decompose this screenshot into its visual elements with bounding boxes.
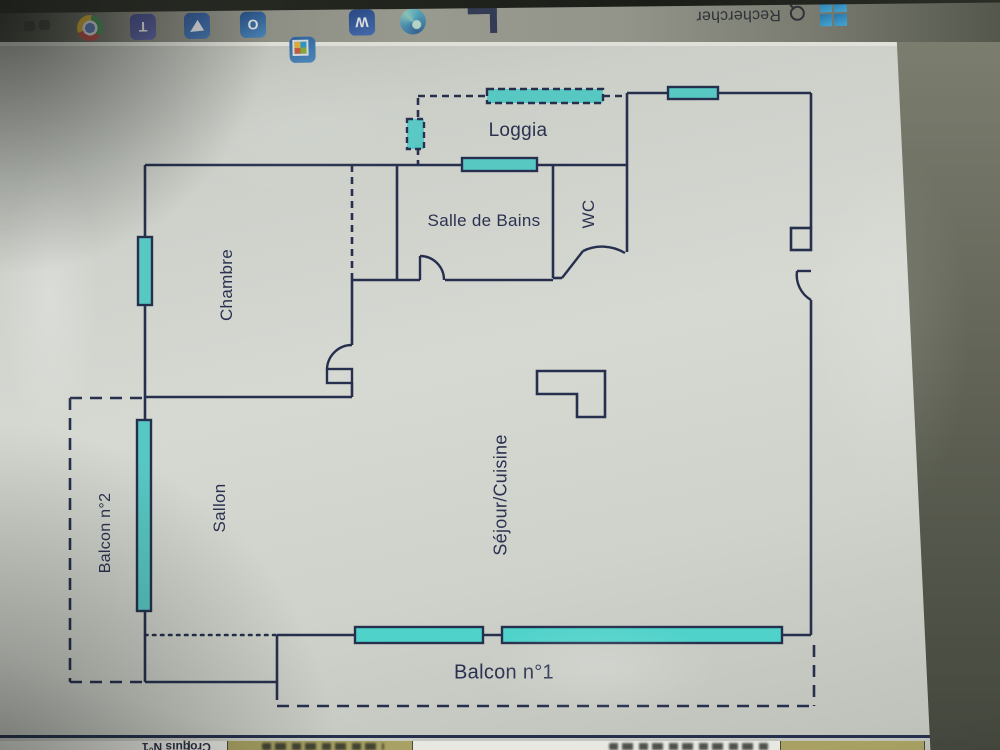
tray-icon[interactable]: [24, 21, 35, 31]
search-box[interactable]: Rechercher: [655, 3, 805, 28]
wc-door-arc: [583, 247, 625, 253]
wc-door-leaf: [562, 251, 583, 278]
kitchen-counter: [537, 371, 605, 417]
entry-door-arc: [797, 271, 811, 300]
floor-plan-drawing: [0, 0, 1000, 750]
word-icon[interactable]: W: [349, 9, 376, 36]
loggia-window-side: [407, 119, 424, 149]
entry-window: [668, 87, 718, 99]
chambre-window: [138, 237, 152, 305]
teams-icon[interactable]: T: [130, 14, 157, 41]
store-icon[interactable]: [289, 36, 316, 63]
label-sallon: Sallon: [210, 483, 230, 532]
walls: [145, 93, 811, 700]
wall-notch: [791, 228, 811, 250]
chambre-door-jamb: [327, 369, 352, 383]
search-label: Rechercher: [696, 5, 781, 25]
app-bracket-icon[interactable]: [468, 7, 498, 34]
sejour-window-1: [355, 627, 483, 643]
designer-icon[interactable]: [184, 13, 211, 40]
label-sejour-cuisine: Séjour/Cuisine: [491, 434, 512, 555]
outlook-icon[interactable]: O: [240, 11, 267, 38]
tray-icon[interactable]: [39, 20, 50, 30]
bains-door-arc: [420, 256, 444, 280]
sejour-window-2: [502, 627, 782, 643]
edge-icon[interactable]: [400, 8, 427, 35]
label-balcon-2: Balcon n°2: [97, 493, 115, 574]
label-balcon-1: Balcon n°1: [454, 662, 554, 685]
label-loggia: Loggia: [489, 120, 548, 142]
label-chambre: Chambre: [217, 249, 237, 321]
bains-window: [462, 158, 537, 171]
chambre-door-arc: [327, 345, 352, 369]
search-icon: [790, 6, 805, 21]
windows: [137, 87, 782, 643]
loggia-window-top: [487, 89, 603, 103]
label-salle-de-bains: Salle de Bains: [428, 211, 541, 231]
photographed-screen: Loggia Salle de Bains WC Chambre Sallon …: [0, 0, 1000, 750]
label-wc: WC: [579, 200, 599, 229]
chrome-icon[interactable]: [77, 15, 104, 42]
doors: [327, 247, 811, 383]
dashed-boundaries: [70, 96, 814, 706]
sallon-window: [137, 420, 151, 611]
